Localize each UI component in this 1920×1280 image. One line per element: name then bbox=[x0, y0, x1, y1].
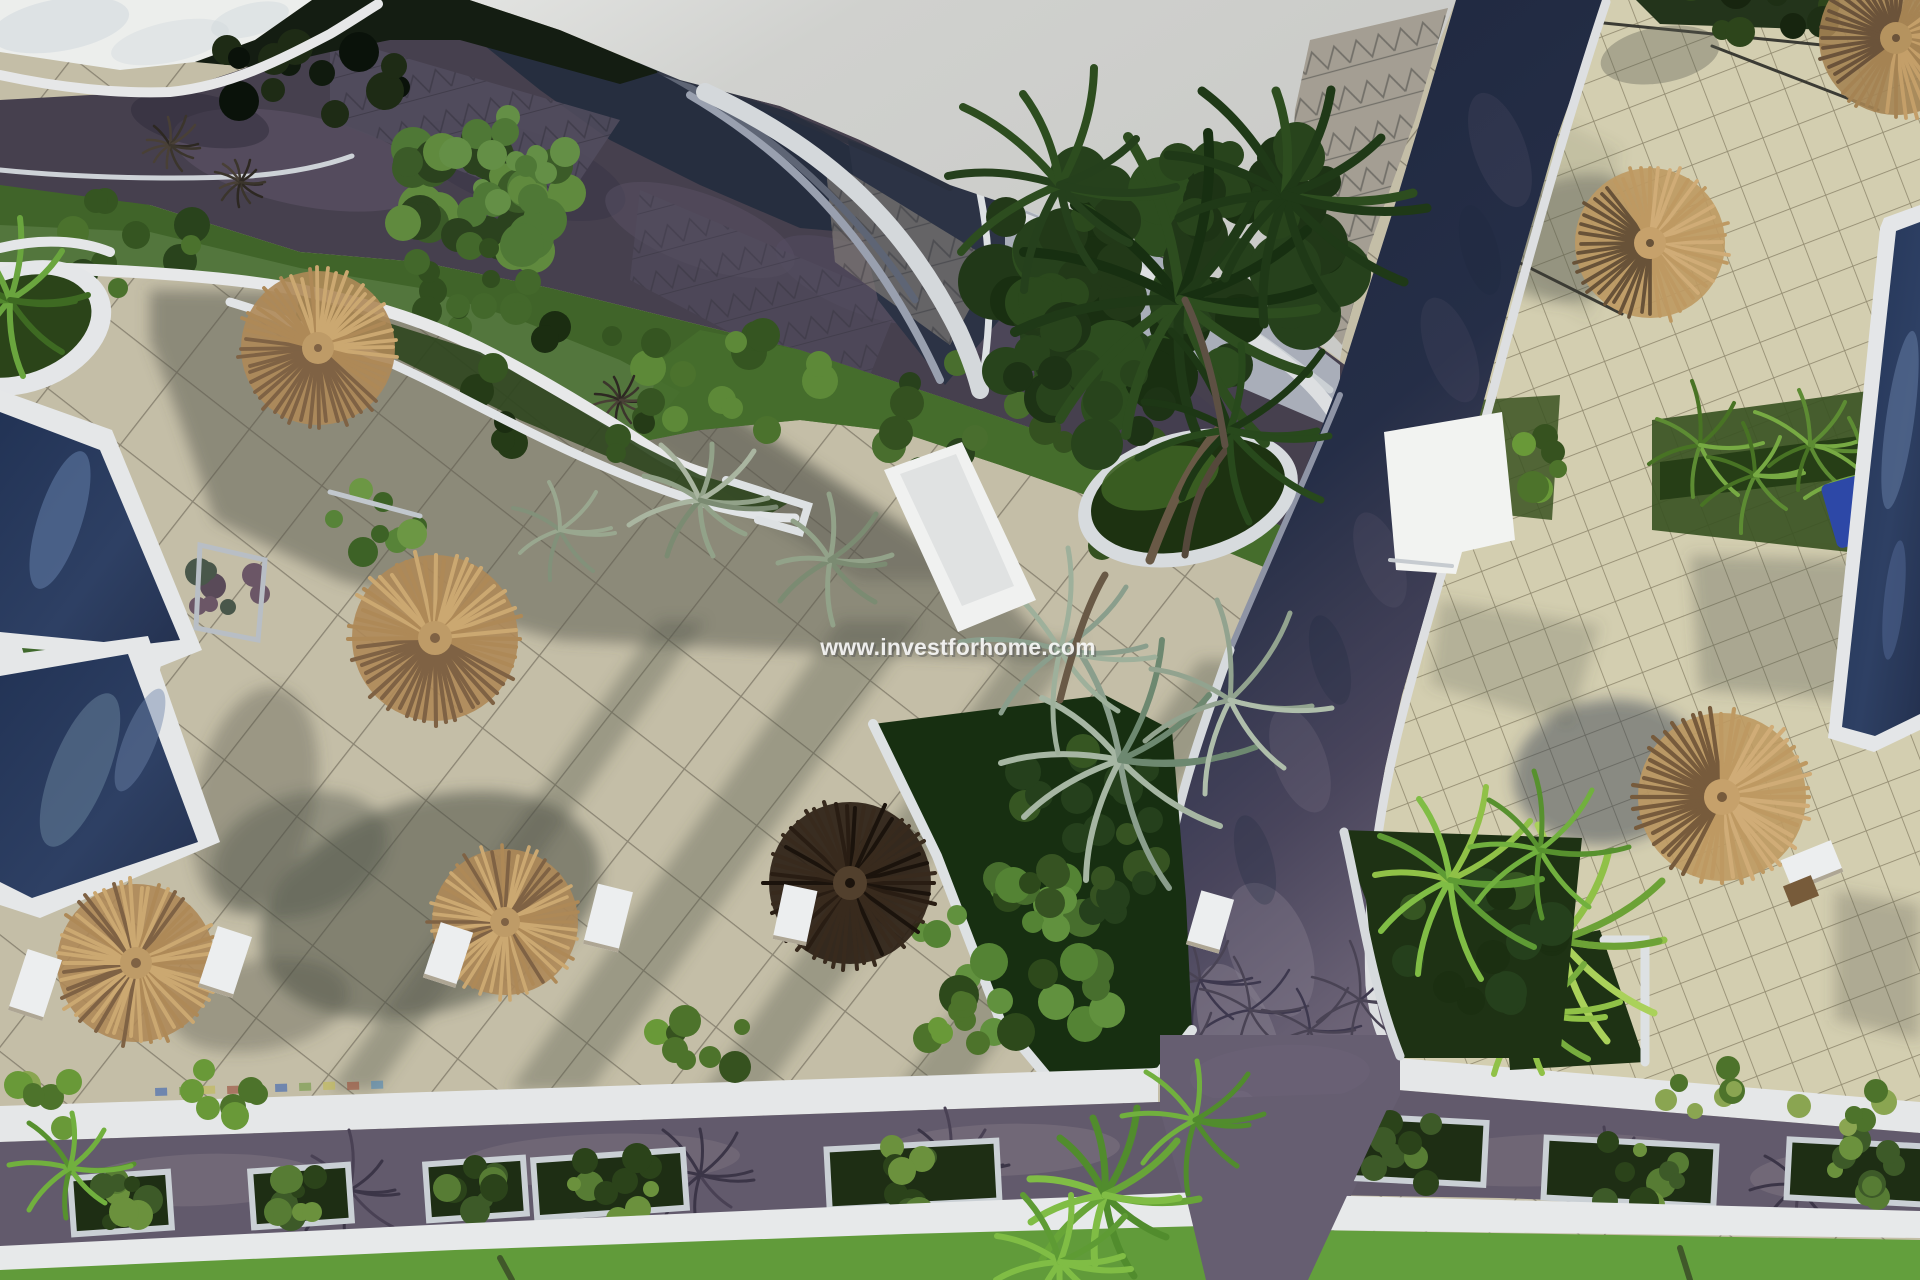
svg-text:www.investforhome.com: www.investforhome.com bbox=[819, 634, 1096, 660]
